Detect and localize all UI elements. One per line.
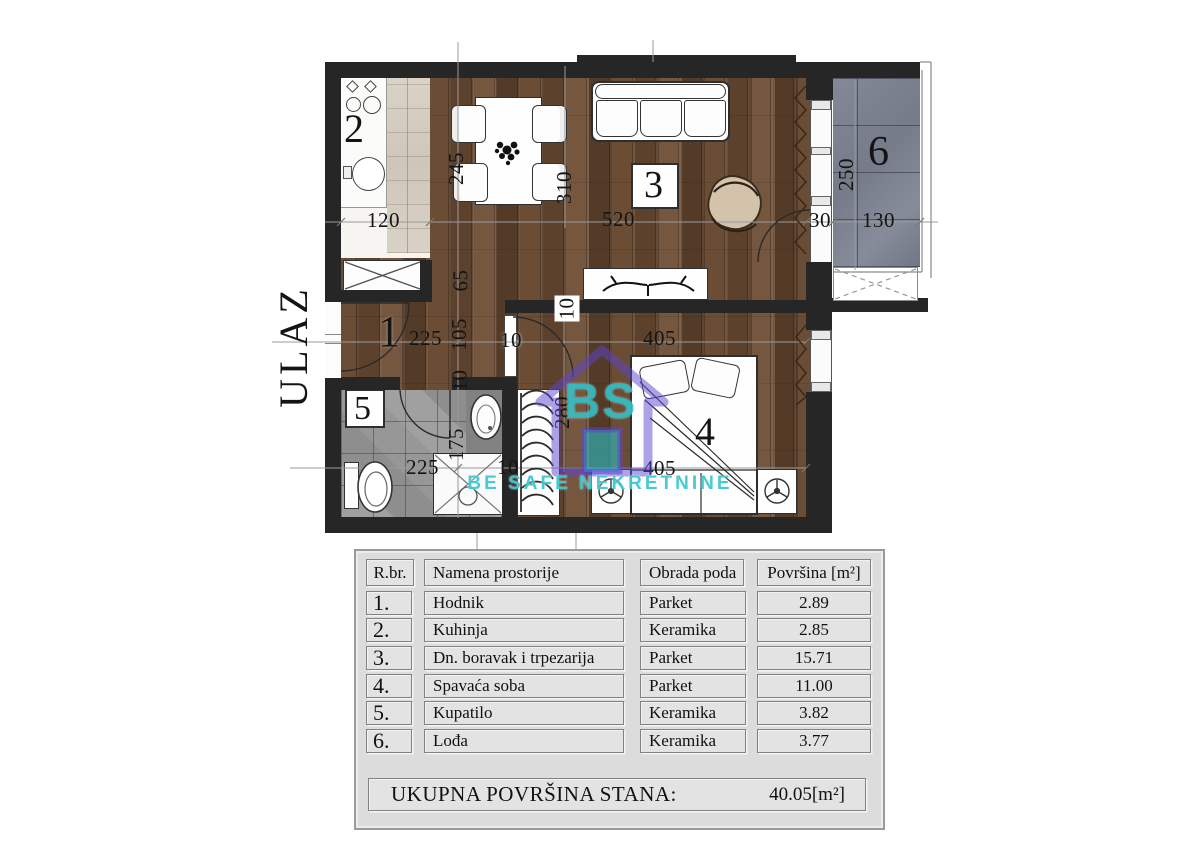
table-row-num: 2. — [366, 618, 412, 642]
table-row-area: 3.82 — [757, 701, 871, 725]
table-row-floor: Keramika — [640, 729, 746, 753]
table-row-floor: Keramika — [640, 701, 746, 725]
watermark-house-door — [584, 430, 620, 472]
table-header-floor: Obrada poda — [640, 559, 744, 586]
floorplan-screenshot: 120 245 310 520 30 130 250 65 225 105 10… — [0, 0, 1200, 848]
table-row-area: 3.77 — [757, 729, 871, 753]
table-total-bar: UKUPNA POVRŠINA STANA: 40.05[m²] — [368, 778, 866, 811]
watermark-logo-text: BS — [564, 372, 637, 430]
table-row-num: 5. — [366, 701, 412, 725]
table-row-area: 11.00 — [757, 674, 871, 698]
table-row-name: Hodnik — [424, 591, 624, 615]
table-row-num: 4. — [366, 674, 412, 698]
table-row-num: 1. — [366, 591, 412, 615]
table-total-label: UKUPNA POVRŠINA STANA: — [369, 782, 677, 807]
table-row-name: Kupatilo — [424, 701, 624, 725]
table-row-area: 2.89 — [757, 591, 871, 615]
table-row-num: 6. — [366, 729, 412, 753]
table-row-num: 3. — [366, 646, 412, 670]
table-header-num: R.br. — [366, 559, 414, 586]
table-row-name: Lođa — [424, 729, 624, 753]
table-row-area: 2.85 — [757, 618, 871, 642]
table-header-name: Namena prostorije — [424, 559, 624, 586]
table-row-floor: Parket — [640, 674, 746, 698]
table-row-area: 15.71 — [757, 646, 871, 670]
table-row-name: Kuhinja — [424, 618, 624, 642]
table-header-area: Površina [m²] — [757, 559, 871, 586]
table-row-floor: Keramika — [640, 618, 746, 642]
table-row-name: Spavaća soba — [424, 674, 624, 698]
watermark-subtitle: BE SAFE NEKRETNINE — [462, 473, 738, 495]
table-row-floor: Parket — [640, 646, 746, 670]
table-total-value: 40.05[m²] — [769, 784, 865, 806]
table-row-name: Dn. boravak i trpezarija — [424, 646, 624, 670]
table-row-floor: Parket — [640, 591, 746, 615]
